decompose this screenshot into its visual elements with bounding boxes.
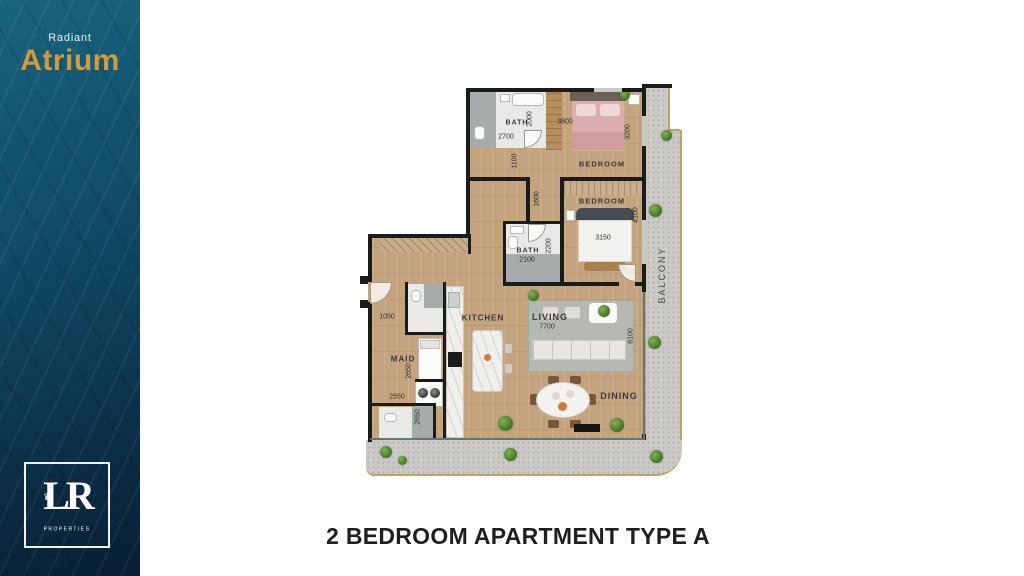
bed2-headboard	[576, 208, 634, 220]
wall-segment	[503, 282, 619, 286]
bathroom1-shower	[470, 92, 496, 148]
plant	[504, 448, 517, 461]
label-bedroom1: BEDROOM	[579, 160, 625, 169]
label-living: LIVING	[532, 312, 568, 322]
kitchen-island	[472, 330, 503, 392]
label-dining: DINING	[600, 391, 638, 401]
brand-top-text: Radiant	[0, 33, 140, 45]
wall-segment	[443, 282, 446, 440]
bowl	[558, 402, 567, 411]
cooktop	[448, 352, 462, 367]
sink	[510, 226, 524, 234]
entry-door-jamb	[360, 276, 368, 284]
nightstand	[566, 210, 575, 221]
plant	[598, 305, 610, 317]
balcony-bottom	[366, 440, 682, 476]
window	[642, 220, 646, 264]
wall-segment	[433, 406, 436, 440]
label-bedroom2: BEDROOM	[579, 197, 625, 206]
floor-plan: BATH 2700 2000 1100 3800 BEDROOM 3200 16…	[360, 70, 732, 482]
glass-wall	[643, 292, 645, 440]
plan-title: 2 BEDROOM APARTMENT TYPE A	[258, 523, 778, 550]
label-bath2: BATH	[517, 248, 540, 255]
dim-bath2-depth: 2200	[546, 238, 553, 254]
dim-maid-depth: 2650	[406, 363, 413, 379]
maid-shower	[424, 284, 443, 308]
plant	[498, 416, 513, 431]
wall-segment	[405, 282, 408, 335]
dining-table	[536, 382, 590, 418]
dim-bedroom1-side: 3200	[625, 124, 632, 140]
balcony-right-top	[646, 88, 670, 132]
brand-sidebar: Radiant Atrium ♛ LR PROPERTIES	[0, 0, 140, 576]
washing-machine	[430, 388, 440, 398]
dim-bedroom1-width: 3800	[557, 119, 573, 126]
plant	[661, 130, 672, 141]
wall-segment	[560, 177, 646, 181]
label-bath1: BATH	[506, 120, 529, 127]
wall-segment	[635, 282, 646, 286]
plant	[398, 456, 407, 465]
lr-caption: PROPERTIES	[37, 527, 96, 532]
toilet	[474, 126, 485, 140]
dining-chair	[548, 420, 559, 428]
wall-segment	[415, 379, 446, 382]
dim-bedroom2-side: 4100	[633, 207, 640, 223]
wall-segment	[468, 234, 471, 254]
wall-segment	[466, 88, 470, 238]
wall-segment	[466, 177, 530, 181]
dim-living-width: 7700	[539, 324, 555, 331]
wall-segment	[526, 177, 530, 223]
lr-monogram: LR	[26, 472, 108, 519]
hall-closet	[380, 238, 468, 252]
tv-console	[574, 424, 600, 432]
glass-wall	[370, 438, 644, 440]
plate	[552, 392, 560, 400]
window	[594, 88, 622, 92]
wall-segment	[368, 234, 470, 238]
stool	[505, 364, 512, 373]
dim-bath1-width: 2700	[498, 134, 514, 141]
label-kitchen: KITCHEN	[462, 314, 505, 323]
washing-machine	[418, 388, 428, 398]
plant	[610, 418, 624, 432]
wardrobe	[564, 181, 642, 196]
wall-segment	[405, 332, 445, 335]
bathtub	[512, 93, 544, 106]
stool	[505, 344, 512, 353]
wall-segment	[368, 403, 436, 406]
sink	[500, 94, 510, 102]
plant	[649, 204, 662, 217]
label-balcony: BALCONY	[657, 246, 667, 303]
dim-bed2: 3150	[595, 235, 611, 242]
dim-living-depth: 6100	[628, 328, 635, 344]
plant	[380, 446, 392, 458]
dim-bath1-depth: 2000	[527, 111, 534, 127]
wall-segment	[368, 234, 372, 282]
kitchen-sink	[448, 292, 460, 308]
plant	[648, 336, 661, 349]
lr-properties-logo: ♛ LR PROPERTIES	[24, 462, 110, 548]
dim-hall: 1100	[512, 153, 519, 168]
dim-maid-width: 2550	[389, 394, 405, 401]
bed-throw	[572, 132, 624, 150]
pillow	[420, 340, 440, 349]
plant	[528, 290, 539, 301]
sofa	[532, 340, 626, 360]
toilet	[384, 413, 397, 422]
bed1-headboard	[570, 92, 626, 101]
pillow	[576, 104, 596, 116]
wall-segment	[503, 221, 506, 285]
dim-bath2-width: 2100	[519, 257, 535, 264]
toilet	[411, 290, 421, 302]
brand-name-text: Atrium	[0, 45, 140, 77]
dim-entry: 1050	[379, 314, 395, 321]
dim-maid-bath: 2650	[415, 409, 422, 425]
plate	[566, 390, 574, 398]
pan	[484, 354, 491, 361]
plant	[650, 450, 663, 463]
brand-logo: Radiant Atrium	[0, 33, 140, 76]
wall-segment	[560, 177, 564, 286]
dim-corridor: 1600	[534, 191, 541, 207]
pillow	[600, 104, 620, 116]
window	[642, 116, 646, 146]
page: Radiant Atrium ♛ LR PROPERTIES	[0, 0, 1024, 576]
wall-segment	[368, 302, 372, 442]
entry-door-jamb	[360, 300, 368, 308]
